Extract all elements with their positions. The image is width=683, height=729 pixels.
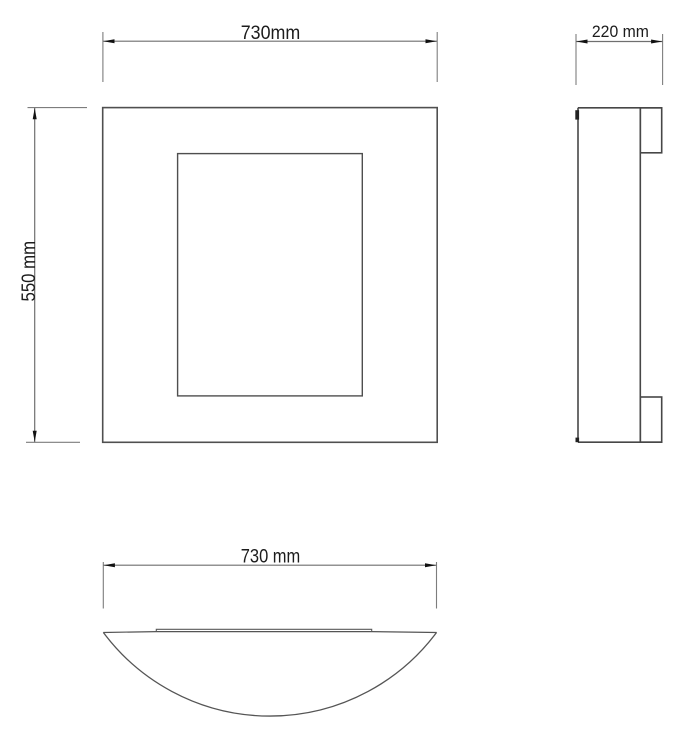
svg-text:550 mm: 550 mm: [18, 241, 40, 302]
svg-text:730 mm: 730 mm: [241, 545, 301, 567]
svg-text:730mm: 730mm: [241, 22, 301, 44]
svg-text:220 mm: 220 mm: [592, 22, 649, 41]
